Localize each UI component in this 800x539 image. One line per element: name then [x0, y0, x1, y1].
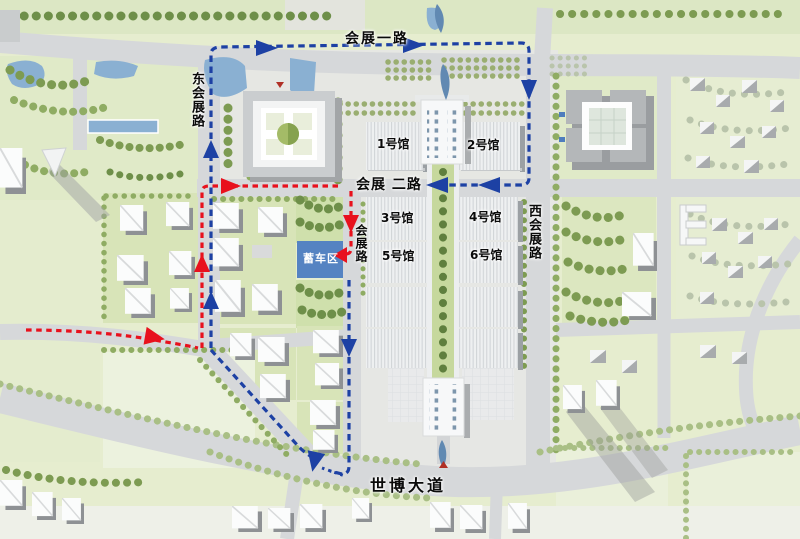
cluster-building: [213, 238, 243, 271]
hall-shadow: [518, 291, 523, 329]
house: [700, 345, 716, 358]
hall-1-label: 1号馆: [377, 138, 409, 150]
hall-shadow: [520, 126, 525, 172]
hall-roof: [455, 329, 518, 368]
hall-5-label: 5号馆: [382, 250, 414, 262]
road-label-center: 会展路: [355, 224, 367, 263]
cluster-building: [117, 255, 148, 285]
north-gate-windows: [447, 106, 459, 158]
entry-mark: [559, 112, 565, 117]
cluster-building: [313, 330, 343, 357]
house: [712, 218, 727, 231]
road-secondary-10: [542, 8, 545, 60]
bottom-building: [62, 498, 84, 524]
cluster-building: [258, 337, 289, 366]
map-graphics: [0, 0, 800, 539]
hall-2-label: 2号馆: [467, 139, 499, 151]
road-label-north: 会展一路: [345, 32, 409, 46]
bottom-building: [300, 504, 326, 532]
hall-shadow: [518, 246, 523, 285]
cluster-building: [258, 207, 287, 237]
paved-square: [252, 245, 272, 258]
cluster-building: [230, 333, 255, 360]
house: [728, 266, 743, 278]
formal-pool: [88, 120, 158, 133]
entry-mark: [559, 137, 565, 142]
e-shaped-building: [680, 205, 706, 245]
corner-building: [0, 10, 20, 42]
cluster-building: [125, 288, 155, 318]
hall-shadow: [518, 201, 523, 242]
hall-roof: [366, 287, 427, 327]
road-label-middle: 会展 二路: [356, 178, 422, 192]
hall-roof: [455, 287, 518, 327]
house: [730, 136, 745, 148]
house: [696, 156, 710, 168]
south-gate-windows: [429, 384, 440, 432]
house: [742, 80, 757, 93]
cluster-building: [169, 251, 195, 279]
hall-4-label: 4号馆: [469, 211, 501, 223]
house: [758, 256, 772, 268]
edge-building: [0, 148, 26, 194]
cluster-building: [310, 400, 340, 429]
bottom-building: [430, 502, 454, 532]
hall-6-label: 6号馆: [470, 249, 502, 261]
flat-wing: [388, 368, 424, 422]
tree-row: [6, 470, 146, 483]
south-gate-windows: [448, 384, 459, 432]
cluster-building: [213, 203, 243, 233]
bottom-building: [32, 492, 56, 520]
house: [690, 78, 705, 91]
bottom-building: [268, 508, 294, 532]
bottom-building: [460, 505, 486, 533]
house: [716, 95, 730, 107]
west-square-building: [243, 82, 342, 182]
tower: [563, 385, 585, 413]
pond-west-building-right: [290, 58, 316, 96]
cluster-building: [166, 202, 193, 230]
e-building-wing: [686, 238, 706, 245]
e-building-wing: [686, 221, 706, 228]
house: [732, 352, 747, 364]
bottom-strip: [0, 506, 800, 539]
house: [744, 160, 759, 173]
house: [700, 292, 714, 304]
cluster-building: [215, 280, 245, 317]
house: [762, 126, 776, 138]
house: [622, 360, 637, 373]
south-gate-shadow: [464, 384, 470, 438]
house: [738, 232, 753, 244]
cluster-building: [315, 363, 343, 389]
house: [702, 252, 716, 264]
north-gate-shadow: [465, 106, 471, 164]
bottom-building: [232, 506, 262, 532]
glass-atrium: [589, 108, 626, 145]
house: [770, 100, 784, 112]
cluster-building: [120, 205, 147, 235]
cluster-building: [260, 374, 290, 402]
hall-3-label: 3号馆: [381, 212, 413, 224]
cluster-building: [170, 288, 192, 312]
road-label-expo-avenue: 世博大道: [370, 478, 446, 494]
hall-shadow: [518, 333, 523, 370]
park-building: [622, 292, 656, 320]
road-label-east: 东会展路: [190, 72, 203, 128]
cluster-building: [252, 284, 282, 315]
hall-roof: [366, 329, 427, 368]
e-building-wing: [686, 205, 706, 212]
site-plan-map: 会展一路 东会展路 会展 二路 西会展路 会展路 世博大道 1号馆 2号馆 3号…: [0, 0, 800, 539]
house: [590, 350, 606, 363]
bottom-building: [0, 480, 26, 510]
east-square-building: [559, 90, 654, 170]
tower: [596, 380, 620, 410]
cluster-building: [313, 430, 338, 453]
house: [764, 218, 778, 230]
north-gate-windows: [427, 106, 439, 158]
park-building: [633, 233, 657, 271]
house: [700, 122, 714, 134]
staging-area-label: 蓄车区: [303, 253, 339, 264]
bottom-building: [508, 503, 530, 533]
bottom-building: [352, 498, 372, 522]
road-label-west: 西会展路: [527, 204, 540, 260]
road-secondary-8: [495, 482, 497, 539]
